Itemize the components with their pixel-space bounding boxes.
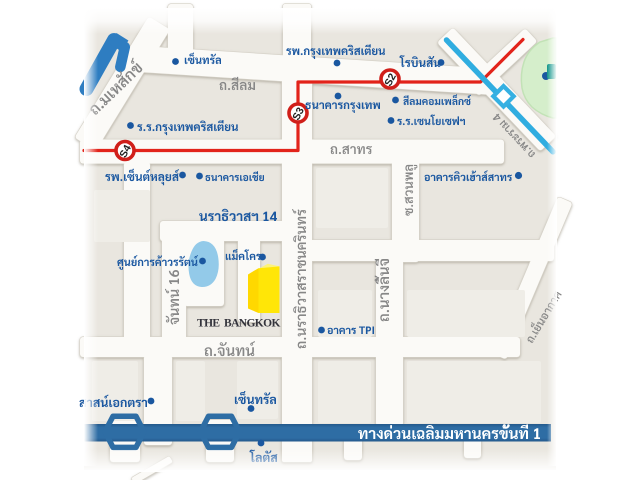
svg-text:THE BANGKOK: THE BANGKOK	[197, 318, 281, 330]
